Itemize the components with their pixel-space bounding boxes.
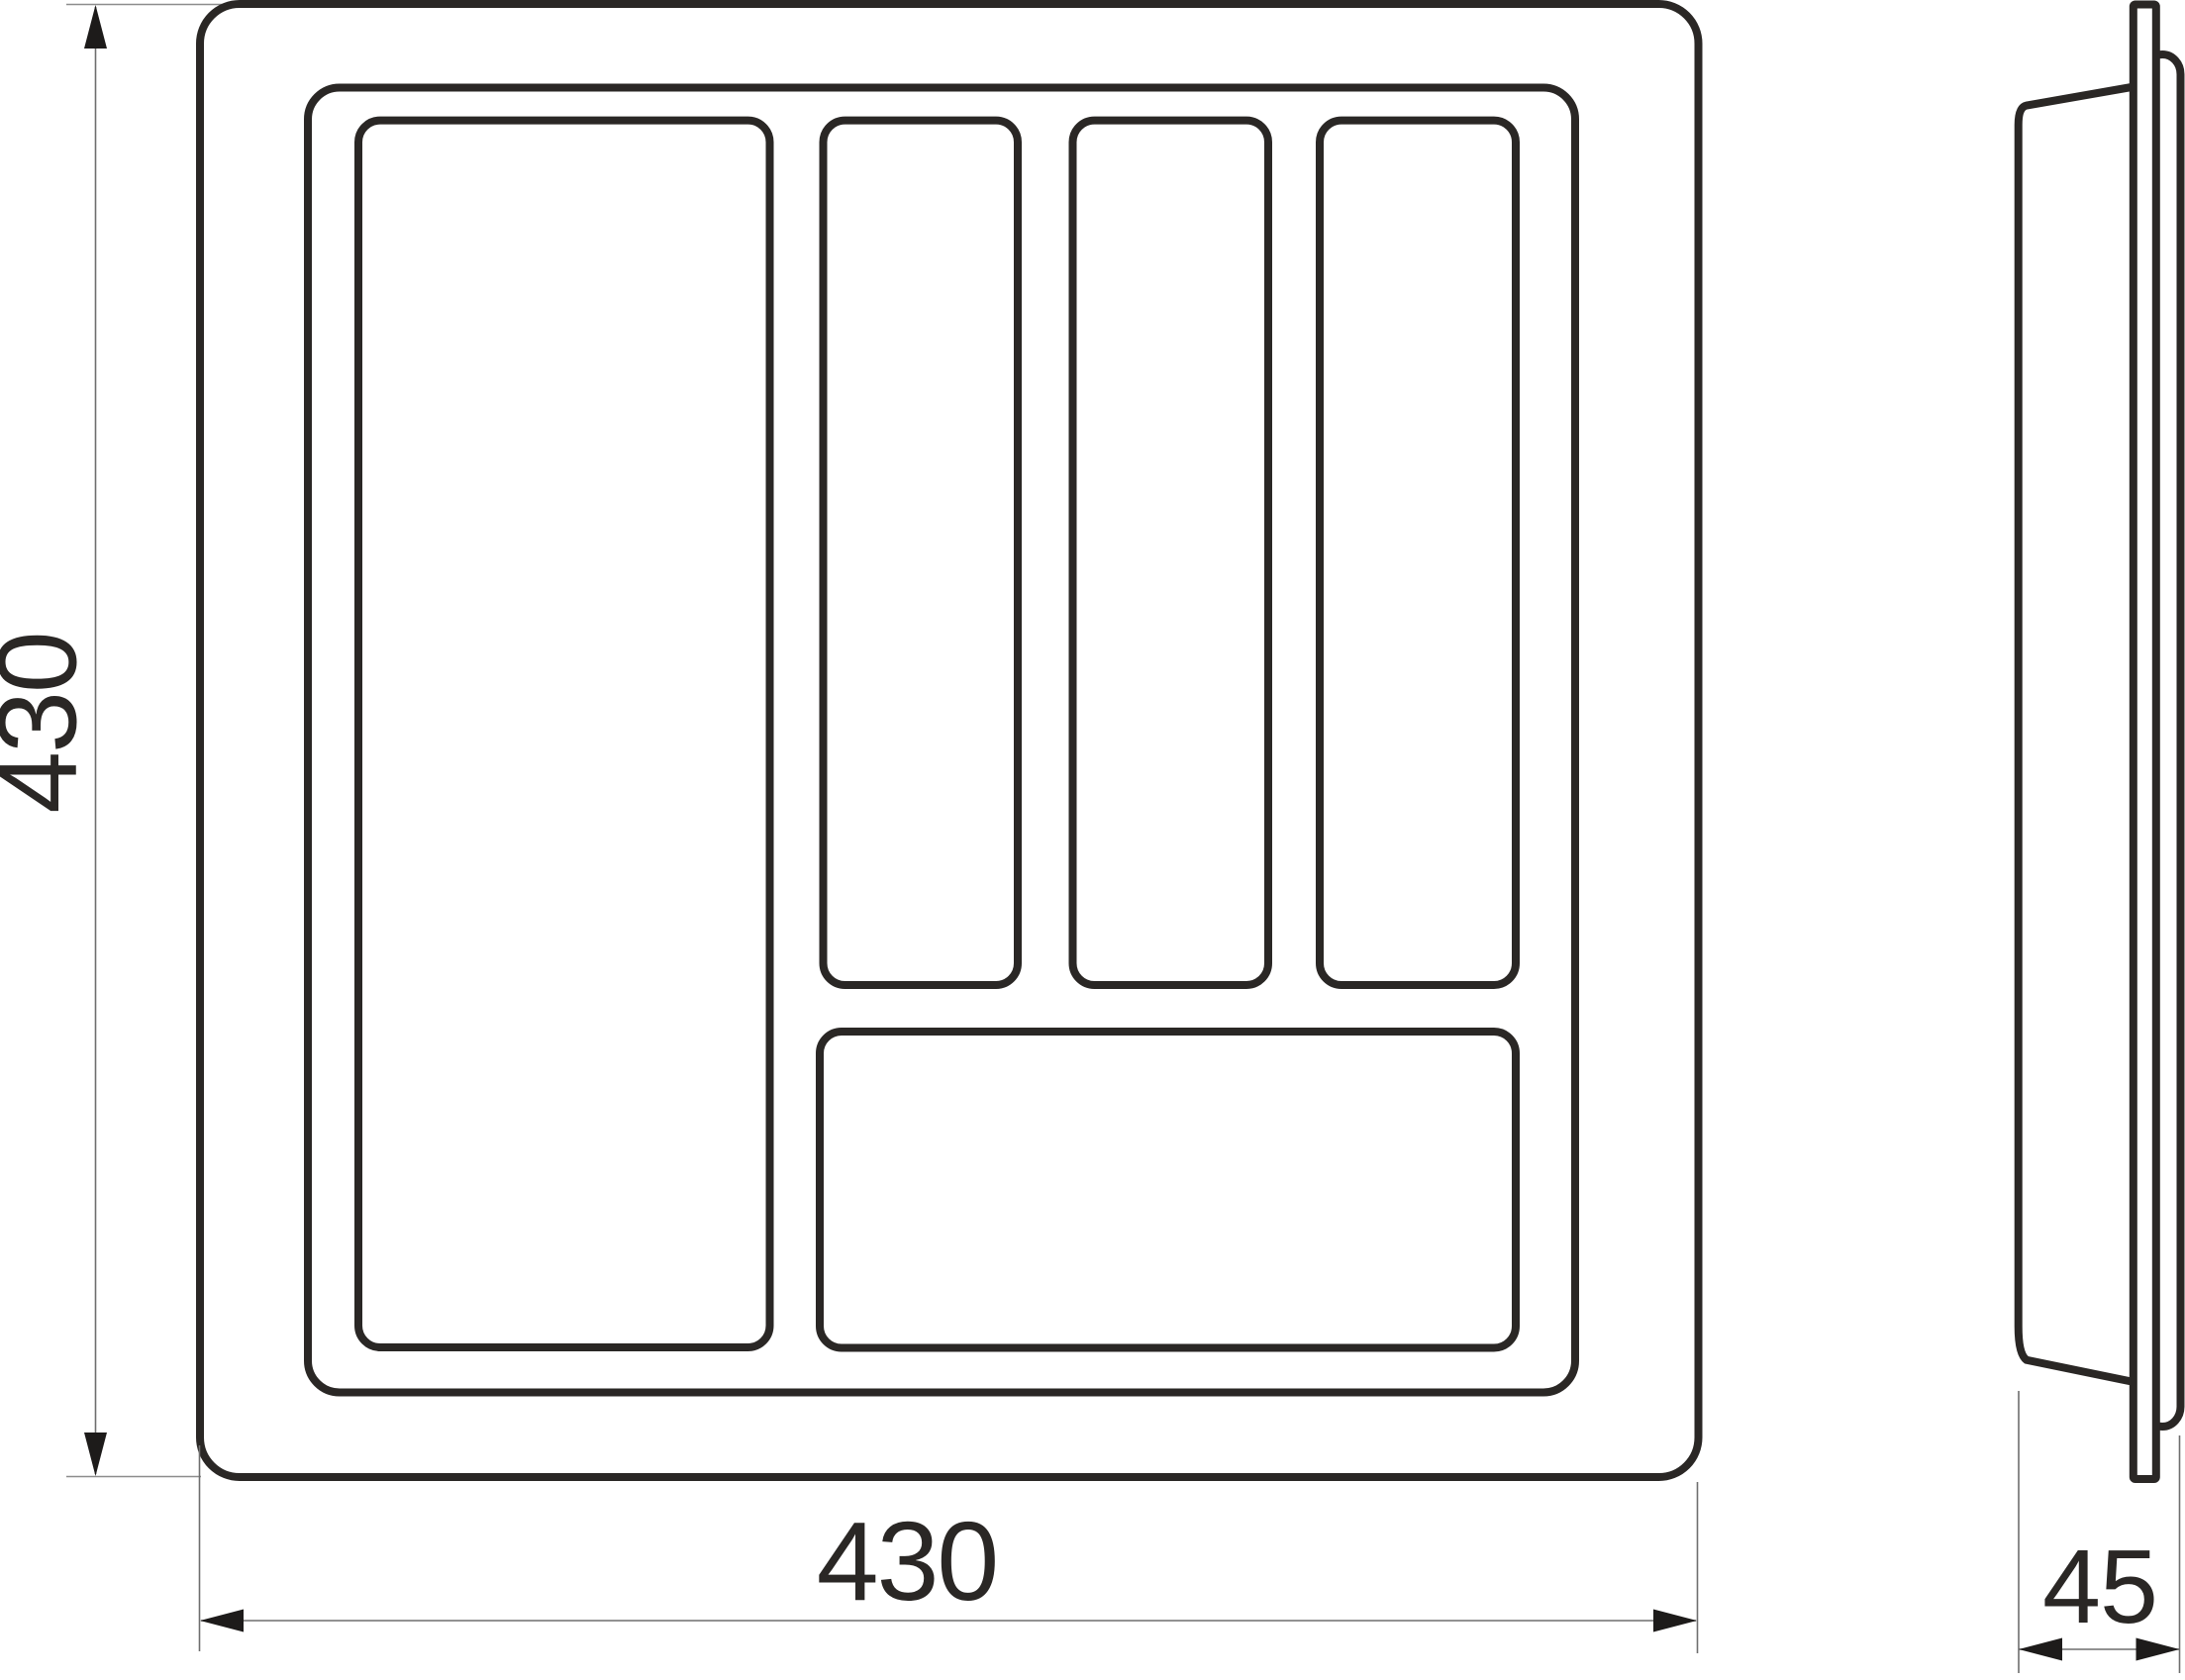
svg-text:430: 430 [0,633,100,814]
svg-text:430: 430 [817,1499,998,1624]
svg-text:45: 45 [2042,1529,2157,1645]
